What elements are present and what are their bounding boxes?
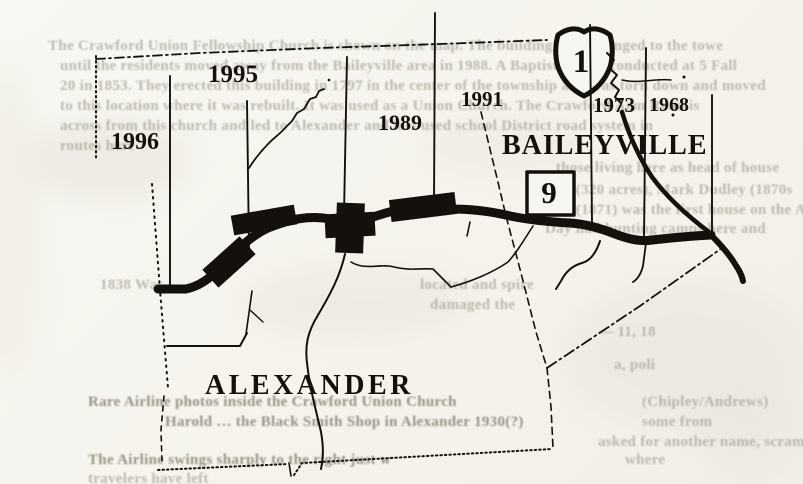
map-speck — [683, 76, 686, 79]
town-label-alexander: ALEXANDER — [205, 372, 414, 400]
side-road — [633, 243, 646, 282]
survey-line — [434, 13, 435, 205]
map-speck — [328, 79, 331, 82]
stream-line — [249, 89, 324, 168]
year-label-1991: 1991 — [461, 89, 503, 110]
map-linework — [0, 0, 803, 484]
scanned-map-page: The Crawford Union Fellowship Church is … — [0, 0, 803, 484]
side-road — [246, 291, 252, 334]
route-shield-number: 1 — [565, 46, 597, 79]
town-boundary-dashes — [161, 396, 164, 462]
town-boundary-top — [96, 40, 547, 59]
side-road — [467, 222, 470, 236]
town-boundary-notch — [289, 463, 291, 476]
town-boundary-bottom-dotted — [158, 464, 288, 470]
year-label-1989: 1989 — [378, 112, 422, 134]
building-block — [324, 212, 375, 239]
alexander-boundary — [167, 333, 247, 346]
side-road — [250, 310, 263, 322]
year-label-1973: 1973 — [593, 95, 635, 116]
town-boundary-bottom-dotted — [294, 449, 552, 475]
year-label-1968: 1968 — [649, 95, 689, 115]
town-label-baileyville: BAILEYVILLE — [502, 132, 708, 160]
building-block — [389, 192, 457, 222]
year-label-1995: 1995 — [208, 62, 258, 87]
route-box-number: 9 — [528, 177, 570, 208]
year-label-1996: 1996 — [111, 130, 159, 154]
dashed-lot-line — [481, 112, 553, 448]
road-airline-end-curve — [711, 235, 743, 281]
side-road — [451, 226, 533, 287]
side-road — [351, 262, 451, 287]
side-road — [556, 241, 600, 289]
side-road — [306, 254, 345, 469]
survey-line — [344, 57, 347, 215]
building-blocks — [202, 192, 457, 288]
